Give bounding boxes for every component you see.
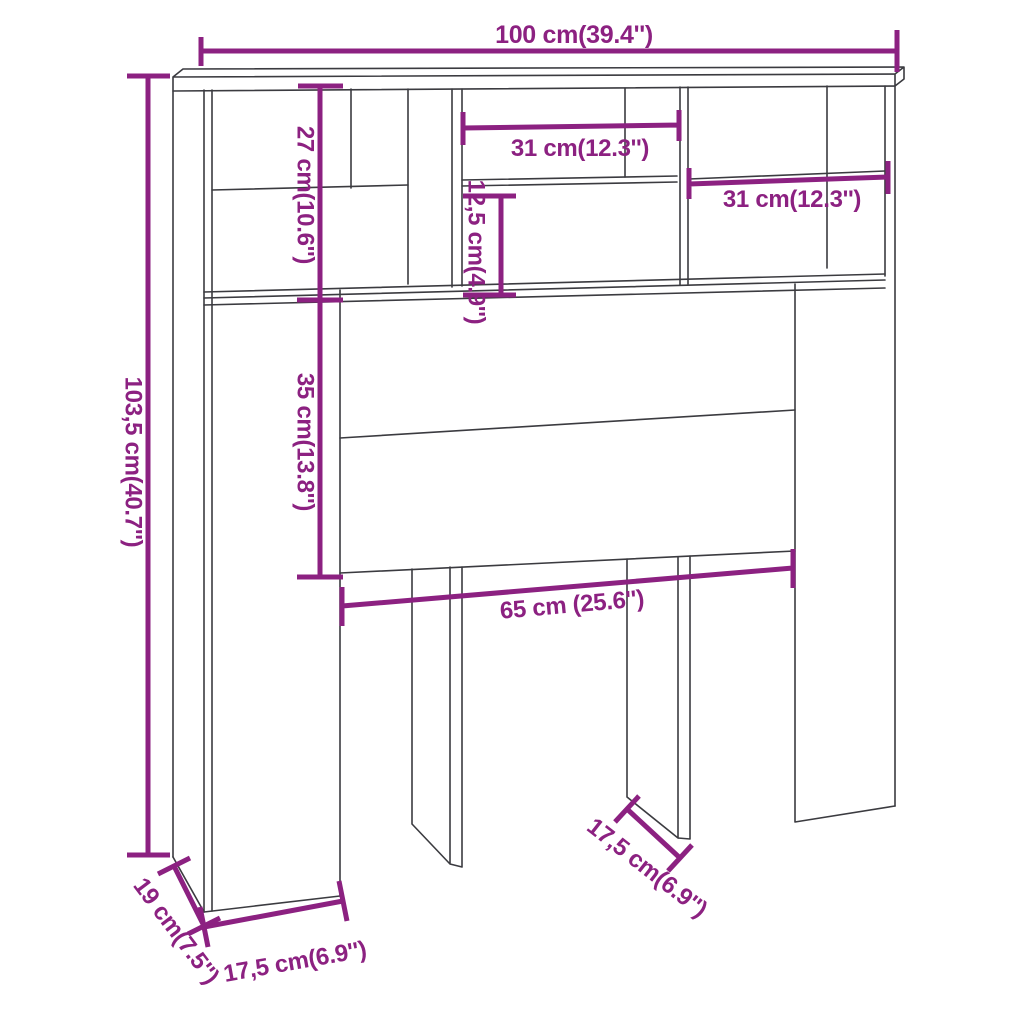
right-column bbox=[795, 284, 895, 822]
headboard-panel bbox=[340, 410, 795, 573]
overall-height-label: 103,5 cm(40.7'') bbox=[120, 377, 147, 548]
left-column-width-label: 17,5 cm(6.9'') bbox=[221, 936, 368, 988]
hutch-height-label: 27 cm(10.6'') bbox=[292, 126, 319, 264]
dim-left-column-width-line bbox=[200, 881, 347, 947]
dimension-lines bbox=[127, 30, 897, 947]
side-panel-depth-label: 19 cm(7.5'') bbox=[128, 873, 225, 989]
middle-lower-opening-height-label: 12,5 cm(4.9'') bbox=[463, 180, 490, 325]
middle-opening-width-label: 31 cm(12.3'') bbox=[511, 135, 649, 162]
right-opening-width-label: 31 cm(12.3'') bbox=[723, 186, 861, 213]
middle-left-leg bbox=[412, 567, 462, 867]
dimension-diagram-page: 100 cm(39.4'') 103,5 cm(40.7'') 27 cm(10… bbox=[0, 0, 1024, 1024]
overall-width-label: 100 cm(39.4'') bbox=[495, 21, 653, 49]
headboard-panel-height-label: 35 cm(13.8'') bbox=[292, 373, 319, 511]
top-board bbox=[173, 67, 904, 91]
headboard-cabinet-diagram: 100 cm(39.4'') 103,5 cm(40.7'') 27 cm(10… bbox=[0, 0, 1024, 1024]
dimension-labels: 100 cm(39.4'') 103,5 cm(40.7'') 27 cm(10… bbox=[120, 21, 862, 989]
